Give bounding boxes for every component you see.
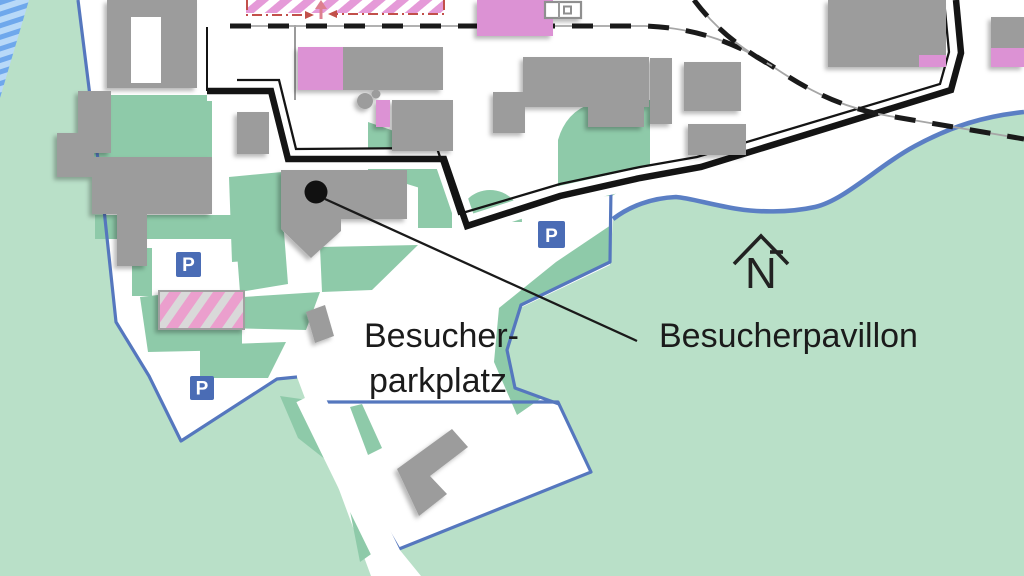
north-letter: N [745,249,777,298]
pavilion-marker [305,181,328,204]
parking-sign-2: P [190,376,214,400]
parking-sign-letter: P [545,226,558,247]
outlined-structure [545,2,581,18]
label-pavilion: Besucherpavillon [659,317,918,355]
construction-parking-area [159,291,244,329]
parking-sign-letter: P [182,255,195,276]
label-parking-line1: Besucher- [364,317,519,355]
parking-sign-1: P [176,252,201,277]
parking-sign-letter: P [196,379,209,400]
parking-sign-3: P [538,221,565,248]
site-map: P P P N Besucher- parkplatz Besucherpavi… [0,0,1024,576]
label-parking-line2: parkplatz [369,362,507,400]
